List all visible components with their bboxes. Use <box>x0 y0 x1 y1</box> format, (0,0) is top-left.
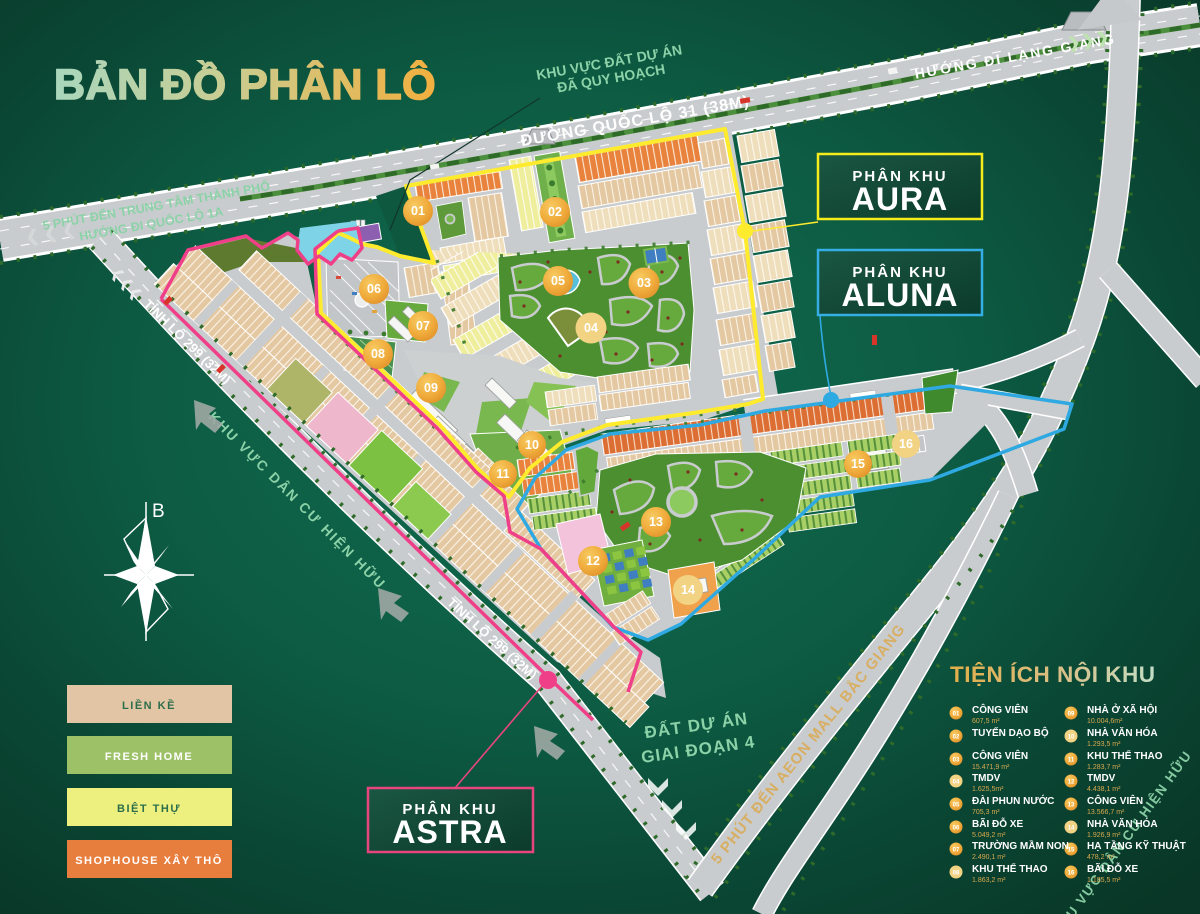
svg-text:1.185,5 m²: 1.185,5 m² <box>1087 877 1121 884</box>
svg-text:1.283,7 m²: 1.283,7 m² <box>1087 764 1121 771</box>
svg-text:TRƯỜNG MẦM NON: TRƯỜNG MẦM NON <box>972 839 1069 852</box>
svg-text:12: 12 <box>586 554 600 568</box>
svg-text:705,3 m²: 705,3 m² <box>972 809 1000 816</box>
svg-text:TUYẾN DẠO BỘ: TUYẾN DẠO BỘ <box>972 726 1049 739</box>
svg-text:03: 03 <box>953 758 960 764</box>
svg-text:10: 10 <box>1068 735 1075 741</box>
svg-text:4.438,1 m²: 4.438,1 m² <box>1087 786 1121 793</box>
svg-text:11: 11 <box>1068 758 1075 764</box>
svg-text:NHÀ VĂN HÓA: NHÀ VĂN HÓA <box>1087 817 1158 830</box>
svg-text:16: 16 <box>899 437 913 451</box>
svg-text:ALUNA: ALUNA <box>842 277 959 313</box>
svg-text:07: 07 <box>416 319 430 333</box>
svg-text:ASTRA: ASTRA <box>392 814 507 850</box>
svg-text:1.293,5 m²: 1.293,5 m² <box>1087 741 1121 748</box>
svg-text:CÔNG VIÊN: CÔNG VIÊN <box>972 749 1028 762</box>
svg-text:13.566,7 m²: 13.566,7 m² <box>1087 809 1125 816</box>
svg-text:AURA: AURA <box>852 181 948 217</box>
svg-text:BIỆT THỰ: BIỆT THỰ <box>117 802 181 815</box>
svg-text:SHOPHOUSE XÂY THÔ: SHOPHOUSE XÂY THÔ <box>75 854 223 867</box>
svg-text:09: 09 <box>1068 712 1075 718</box>
svg-text:05: 05 <box>953 803 960 809</box>
svg-text:607,5 m²: 607,5 m² <box>972 718 1000 725</box>
svg-text:14: 14 <box>1068 826 1075 832</box>
svg-text:07: 07 <box>953 848 960 854</box>
svg-text:CÔNG VIÊN: CÔNG VIÊN <box>1087 794 1143 807</box>
svg-text:14: 14 <box>681 583 695 597</box>
svg-text:FRESH HOME: FRESH HOME <box>105 751 193 763</box>
svg-text:CÔNG VIÊN: CÔNG VIÊN <box>972 703 1028 716</box>
svg-text:05: 05 <box>551 274 565 288</box>
svg-text:15: 15 <box>851 457 865 471</box>
svg-text:1.625,5m²: 1.625,5m² <box>972 786 1004 793</box>
svg-text:BÃI ĐỖ XE: BÃI ĐỖ XE <box>1087 862 1138 875</box>
svg-text:ĐÀI PHUN NƯỚC: ĐÀI PHUN NƯỚC <box>972 794 1054 807</box>
svg-text:2.490,1 m²: 2.490,1 m² <box>972 854 1006 861</box>
svg-text:09: 09 <box>424 381 438 395</box>
svg-text:TMDV: TMDV <box>972 773 1001 784</box>
svg-text:LIỀN KỀ: LIỀN KỀ <box>122 699 176 712</box>
svg-text:16: 16 <box>1068 871 1075 877</box>
svg-text:04: 04 <box>584 321 598 335</box>
svg-text:13: 13 <box>649 515 663 529</box>
svg-text:478,2 m²: 478,2 m² <box>1087 854 1115 861</box>
svg-text:NHÀ Ở XÃ HỘI: NHÀ Ở XÃ HỘI <box>1087 703 1157 716</box>
svg-text:03: 03 <box>637 276 651 290</box>
svg-text:01: 01 <box>953 712 960 718</box>
svg-text:06: 06 <box>367 282 381 296</box>
svg-text:TMDV: TMDV <box>1087 773 1116 784</box>
svg-text:HẠ TẦNG KỸ THUẬT: HẠ TẦNG KỸ THUẬT <box>1087 839 1186 852</box>
svg-text:1.926,9 m²: 1.926,9 m² <box>1087 832 1121 839</box>
svg-text:01: 01 <box>411 204 425 218</box>
svg-text:08: 08 <box>953 871 960 877</box>
svg-text:1.863,2 m²: 1.863,2 m² <box>972 877 1006 884</box>
svg-text:KHU THỂ THAO: KHU THỂ THAO <box>1087 749 1163 762</box>
svg-text:5.049,2 m²: 5.049,2 m² <box>972 832 1006 839</box>
svg-text:02: 02 <box>548 205 562 219</box>
svg-text:11: 11 <box>496 467 509 481</box>
svg-text:KHU THỂ THAO: KHU THỂ THAO <box>972 862 1048 875</box>
svg-text:10.004,6m²: 10.004,6m² <box>1087 718 1123 725</box>
svg-text:15.471,9 m²: 15.471,9 m² <box>972 764 1010 771</box>
svg-text:10: 10 <box>525 438 539 452</box>
svg-text:B: B <box>152 501 165 522</box>
svg-text:12: 12 <box>1068 780 1075 786</box>
svg-text:04: 04 <box>953 780 960 786</box>
svg-text:BÃI ĐỖ XE: BÃI ĐỖ XE <box>972 817 1023 830</box>
svg-text:13: 13 <box>1068 803 1075 809</box>
svg-text:08: 08 <box>371 347 385 361</box>
svg-text:BẢN ĐỒ PHÂN LÔ: BẢN ĐỒ PHÂN LÔ <box>54 60 436 109</box>
svg-text:TIỆN ÍCH NỘI KHU: TIỆN ÍCH NỘI KHU <box>950 662 1156 687</box>
svg-text:06: 06 <box>953 826 960 832</box>
svg-text:02: 02 <box>953 735 960 741</box>
svg-text:NHÀ VĂN HÓA: NHÀ VĂN HÓA <box>1087 726 1158 739</box>
